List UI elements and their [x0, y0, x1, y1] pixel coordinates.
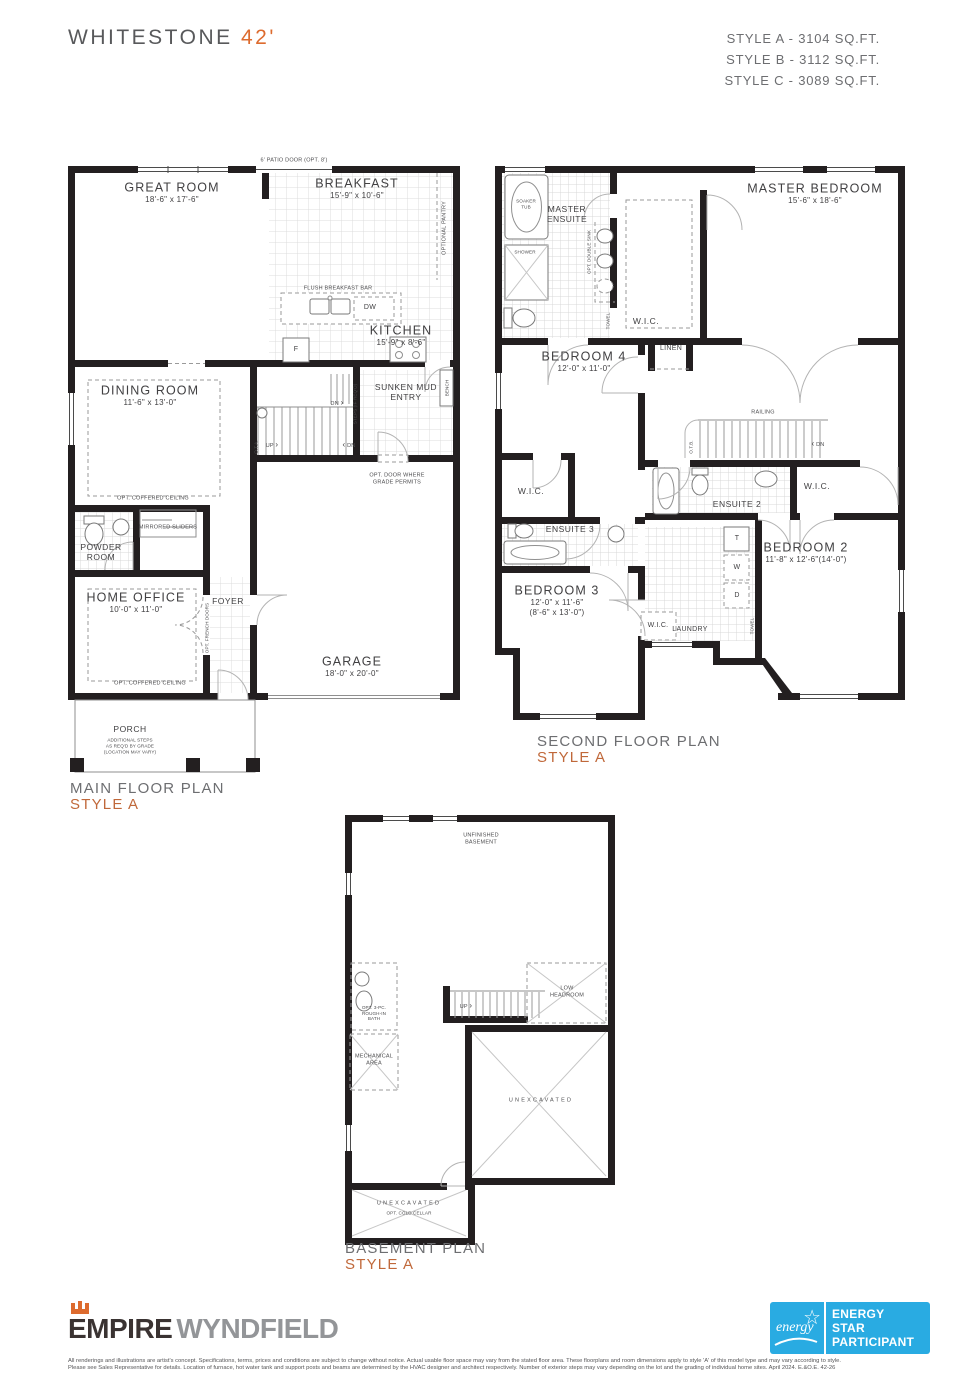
- kitchen-dims: 15'-9" x 8'-6": [377, 338, 426, 348]
- powder-sink-icon: [113, 519, 129, 535]
- stairs2-dn-label: ‹ DN: [812, 439, 825, 449]
- towel-label: TOWEL: [605, 313, 611, 330]
- floorplan-graphics: .wall{fill:#231f20} .open{fill:#ffffff} …: [0, 0, 960, 1400]
- brand-secondary: WYNDFIELD: [176, 1313, 338, 1344]
- breakfast-dims: 15'-9" x 10'-6": [330, 191, 384, 201]
- porch-note-2: AS REQ'D BY GRADE: [106, 743, 154, 749]
- soaker-tub-label: SOAKER TUB: [512, 199, 540, 210]
- master-wic-label: W.I.C.: [633, 316, 659, 326]
- mechanical-area-label: MECHANICAL AREA: [350, 1053, 398, 1066]
- kitchen-island: [281, 293, 401, 324]
- master-toilet-icon: [504, 308, 535, 328]
- mud-entry-label: SUNKEN MUD ENTRY: [368, 382, 444, 402]
- double-sink-label: OPT. DOUBLE SINK: [586, 230, 592, 274]
- shower-label: SHOWER: [514, 249, 535, 255]
- arrow-right-icon: ›: [341, 398, 344, 407]
- porch-outline: [70, 700, 260, 772]
- bench-label: BENCH: [444, 380, 450, 397]
- bedroom2-label: BEDROOM 2: [764, 541, 849, 556]
- laundry-label: LAUNDRY: [672, 626, 707, 634]
- ensuite3-label: ENSUITE 3: [546, 524, 594, 534]
- second-stairs: [685, 420, 828, 458]
- energy-line2: STAR: [832, 1321, 930, 1335]
- tub-label: T: [735, 535, 740, 543]
- dining-room-dims: 11'-6" x 13'-0": [123, 398, 176, 408]
- porch-note-3: (LOCATION MAY VARY): [104, 749, 156, 755]
- rough-in-label: OPT. 3-PC. ROUGH-IN BATH: [357, 1005, 391, 1022]
- floorplan-sheet: WHITESTONE 42' STYLE A - 3104 SQ.FT. STY…: [0, 0, 960, 1400]
- breakfast-label: BREAKFAST: [315, 177, 399, 192]
- dw-label: DW: [364, 304, 376, 312]
- patio-door-label: 6' PATIO DOOR (OPT. 8'): [260, 158, 327, 165]
- star-icon: ☆: [803, 1308, 821, 1328]
- energy-star-badge: energy ☆ ENERGY STAR PARTICIPANT: [770, 1302, 930, 1354]
- brand-primary: EMPIRE: [68, 1313, 172, 1344]
- energy-line1: ENERGY: [832, 1307, 930, 1321]
- french-doors-label: OPT. FRENCH DOORS: [204, 603, 210, 653]
- bedroom3-label: BEDROOM 3: [515, 584, 600, 599]
- second-floor-style: STYLE A: [537, 749, 606, 766]
- second-floor-drawing: [495, 166, 905, 720]
- porch-note-1: ADDITIONAL STEPS: [107, 737, 152, 743]
- bedroom4-label: BEDROOM 4: [542, 350, 627, 365]
- dining-coffered-label: OPT. COFFERED CEILING: [117, 496, 189, 503]
- bedroom4-wic-label: W.I.C.: [518, 486, 544, 496]
- master-bedroom-dims: 15'-6" x 18'-6": [788, 196, 842, 206]
- stairs-up-label: UP ›: [266, 440, 279, 450]
- disclaimer-line2: Please see Sales Representative for deta…: [68, 1365, 918, 1372]
- second-floor-caption: SECOND FLOOR PLAN: [537, 733, 721, 750]
- opt-door-label: OPT. DOOR WHERE GRADE PERMITS: [364, 472, 430, 485]
- builder-logo: EMPIREWYNDFIELD: [68, 1301, 338, 1343]
- optional-pantry-label: OPTIONAL PANTRY: [442, 201, 449, 255]
- basement-drawing: [345, 815, 615, 1245]
- powder-toilet-icon: [84, 516, 104, 545]
- cold-cellar-label: OPT. COLD CELLAR: [387, 1210, 432, 1216]
- stairs-dn-label: DN ›: [331, 398, 344, 408]
- unexcavated2-label: UNEXCAVATED: [377, 1201, 441, 1208]
- energy-star-logo-icon: energy ☆: [770, 1302, 826, 1354]
- unexcavated-label: UNEXCAVATED: [509, 1098, 573, 1105]
- basement-door-swing: [441, 1162, 465, 1186]
- bedroom3-dims: 12'-0" x 11'-6": [530, 598, 583, 608]
- bedroom3-wic-label: W.I.C.: [648, 622, 669, 630]
- bedroom2-dims: 11'-8" x 12'-6"(14'-0"): [765, 555, 846, 565]
- great-room-dims: 18'-6" x 17'-6": [145, 195, 199, 205]
- railing-label: RAILING: [751, 410, 774, 417]
- mirrored-sliders-closet: [140, 510, 196, 537]
- mirrored-sliders-label: MIRRORED SLIDERS: [139, 525, 197, 532]
- ensuite2-label: ENSUITE 2: [713, 499, 761, 509]
- dining-window: [68, 393, 75, 445]
- arrow-left-icon: ‹: [343, 440, 346, 449]
- dining-room-label: DINING ROOM: [101, 384, 199, 399]
- basement-style: STYLE A: [345, 1256, 414, 1273]
- energy-line3: PARTICIPANT: [832, 1335, 930, 1349]
- linen-label: LINEN: [660, 345, 682, 353]
- basement-caption: BASEMENT PLAN: [345, 1240, 486, 1257]
- arrow-right-icon: ›: [469, 1001, 472, 1010]
- basement-up-label: UP ›: [460, 1001, 473, 1011]
- patio-door: [252, 166, 336, 173]
- arrow-left-icon: ‹: [812, 439, 815, 448]
- garage-label: GARAGE: [322, 655, 382, 670]
- great-room-window: [138, 166, 228, 173]
- low-headroom-label: LOW HEADROOM: [545, 985, 589, 998]
- porch-label: PORCH: [113, 724, 146, 734]
- breakfast-bar-label: FLUSH BREAKFAST BAR: [304, 286, 373, 293]
- fridge-label: F: [294, 346, 299, 354]
- steps-if-reqd-label: STEPS (IF REQ'D): [352, 384, 358, 425]
- bedroom3-dims-alt: (8'-6" x 13'-0"): [530, 608, 585, 618]
- great-room-label: GREAT ROOM: [124, 181, 219, 196]
- foyer-label: FOYER: [212, 596, 244, 606]
- towel2-label: TOWEL: [749, 618, 755, 635]
- office-coffered-label: OPT. COFFERED CEILING: [114, 681, 186, 688]
- garage-dims: 18'-0" x 20'-0": [325, 669, 379, 679]
- master-bedroom-label: MASTER BEDROOM: [747, 182, 883, 197]
- disclaimer-text: All renderings and illustrations are art…: [68, 1358, 918, 1372]
- foyer-tile-floor: [210, 577, 250, 693]
- ota-label: O.T.A.: [253, 440, 259, 453]
- kitchen-label: KITCHEN: [370, 324, 433, 339]
- disclaimer-line1: All renderings and illustrations are art…: [68, 1358, 918, 1365]
- bedroom4-dims: 12'-0" x 11'-0": [557, 364, 610, 374]
- swoosh-icon: [773, 1332, 819, 1348]
- master-ensuite-label: MASTER ENSUITE: [539, 204, 595, 224]
- arrow-right-icon: ›: [275, 440, 278, 449]
- master-wic-shelving: [626, 200, 692, 328]
- main-floor-style: STYLE A: [70, 796, 139, 813]
- main-floor-caption: MAIN FLOOR PLAN: [70, 780, 225, 797]
- stairs-dn2-label: ‹ DN: [343, 440, 356, 450]
- home-office-dims: 10'-0" x 11'-0": [109, 605, 162, 615]
- bedroom2-wic-label: W.I.C.: [804, 481, 830, 491]
- home-office-label: HOME OFFICE: [87, 591, 186, 606]
- washer-label: W: [734, 564, 741, 572]
- dryer-label: D: [734, 592, 739, 600]
- otb-label: O.T.B.: [688, 440, 694, 453]
- unfinished-basement-label: UNFINISHED BASEMENT: [451, 832, 511, 845]
- powder-room-label: POWDER ROOM: [75, 542, 127, 562]
